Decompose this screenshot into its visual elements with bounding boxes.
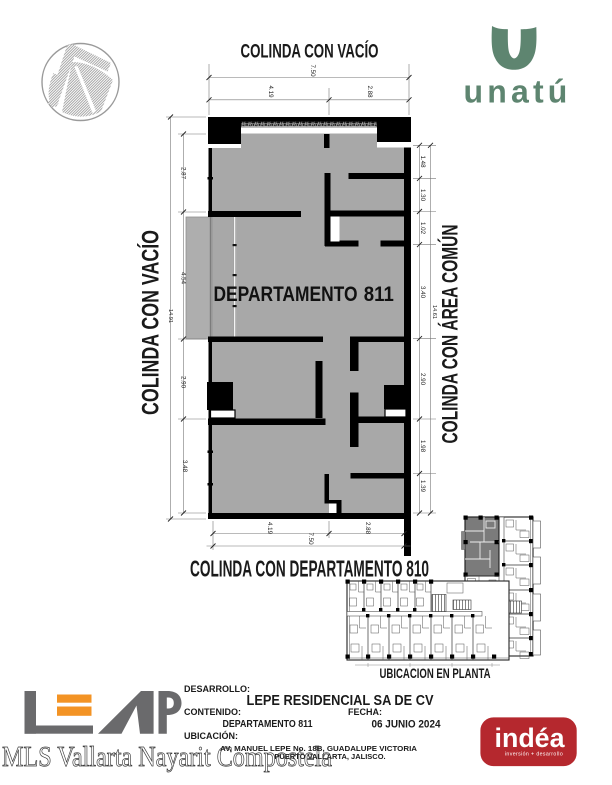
svg-text:2.88: 2.88 [364, 522, 371, 535]
svg-text:1.30: 1.30 [419, 189, 426, 202]
svg-text:COLINDA CON VACÍO: COLINDA CON VACÍO [137, 230, 165, 415]
svg-text:2.87: 2.87 [180, 167, 187, 180]
svg-text:7.50: 7.50 [309, 64, 316, 77]
svg-text:1.98: 1.98 [419, 440, 426, 453]
svg-text:inversión + desarrollo: inversión + desarrollo [505, 752, 563, 758]
svg-text:COLINDA CON VACÍO: COLINDA CON VACÍO [241, 40, 379, 63]
svg-text:COLINDA CON DEPARTAMENTO 810: COLINDA CON DEPARTAMENTO 810 [190, 556, 429, 582]
svg-text:06 JUNIO 2024: 06 JUNIO 2024 [372, 719, 442, 731]
svg-text:1.48: 1.48 [419, 155, 426, 168]
svg-text:UBICACION EN PLANTA: UBICACION EN PLANTA [380, 665, 491, 681]
svg-text:1.39: 1.39 [419, 480, 426, 493]
svg-text:CONTENIDO:: CONTENIDO: [184, 707, 241, 717]
svg-text:DEPARTAMENTO 811: DEPARTAMENTO 811 [223, 719, 313, 730]
svg-text:3.48: 3.48 [181, 460, 188, 473]
svg-text:UBICACIÓN:: UBICACIÓN: [184, 730, 238, 741]
svg-text:14.91: 14.91 [167, 309, 173, 323]
svg-text:7.50: 7.50 [307, 532, 314, 545]
svg-text:4.19: 4.19 [266, 522, 273, 535]
svg-text:MLS Vallarta Nayarit Compostel: MLS Vallarta Nayarit Compostela [2, 742, 332, 773]
svg-text:unatú: unatú [463, 74, 571, 110]
svg-text:4.19: 4.19 [267, 85, 274, 98]
svg-text:14.61: 14.61 [431, 305, 437, 319]
svg-text:3.40: 3.40 [419, 286, 426, 299]
svg-text:4.54: 4.54 [180, 272, 187, 285]
svg-text:FECHA:: FECHA: [348, 707, 382, 717]
svg-text:LEPE RESIDENCIAL SA DE CV: LEPE RESIDENCIAL SA DE CV [247, 693, 434, 709]
svg-text:COLINDA CON ÁREA COMÚN: COLINDA CON ÁREA COMÚN [438, 225, 463, 444]
svg-text:2.90: 2.90 [419, 373, 426, 386]
svg-text:811: 811 [364, 282, 394, 306]
svg-text:indéa: indéa [495, 723, 566, 753]
svg-text:1.02: 1.02 [419, 222, 426, 235]
svg-text:2.88: 2.88 [366, 85, 373, 98]
svg-text:2.90: 2.90 [180, 376, 187, 389]
svg-text:DESARROLLO:: DESARROLLO: [184, 684, 250, 694]
svg-text:DEPARTAMENTO: DEPARTAMENTO [214, 282, 358, 306]
